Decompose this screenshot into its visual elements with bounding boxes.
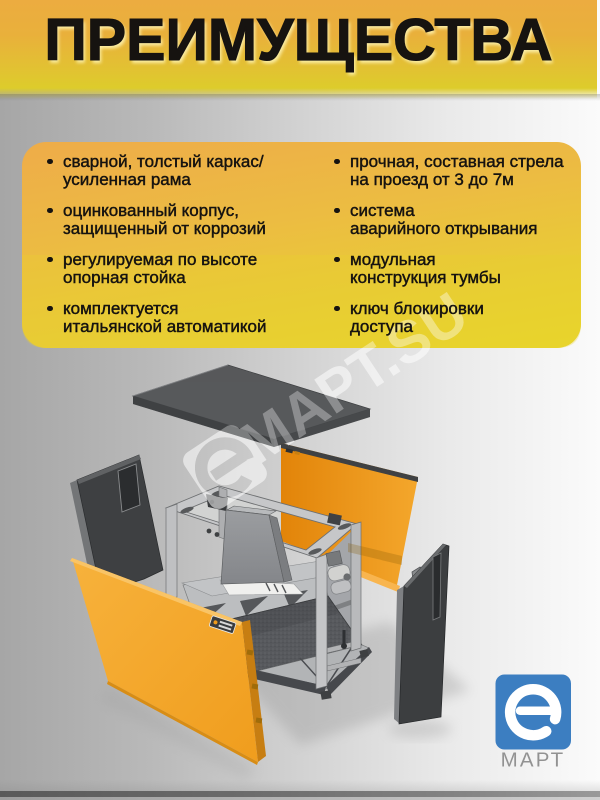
svg-text:МАРТ: МАРТ xyxy=(501,749,566,772)
